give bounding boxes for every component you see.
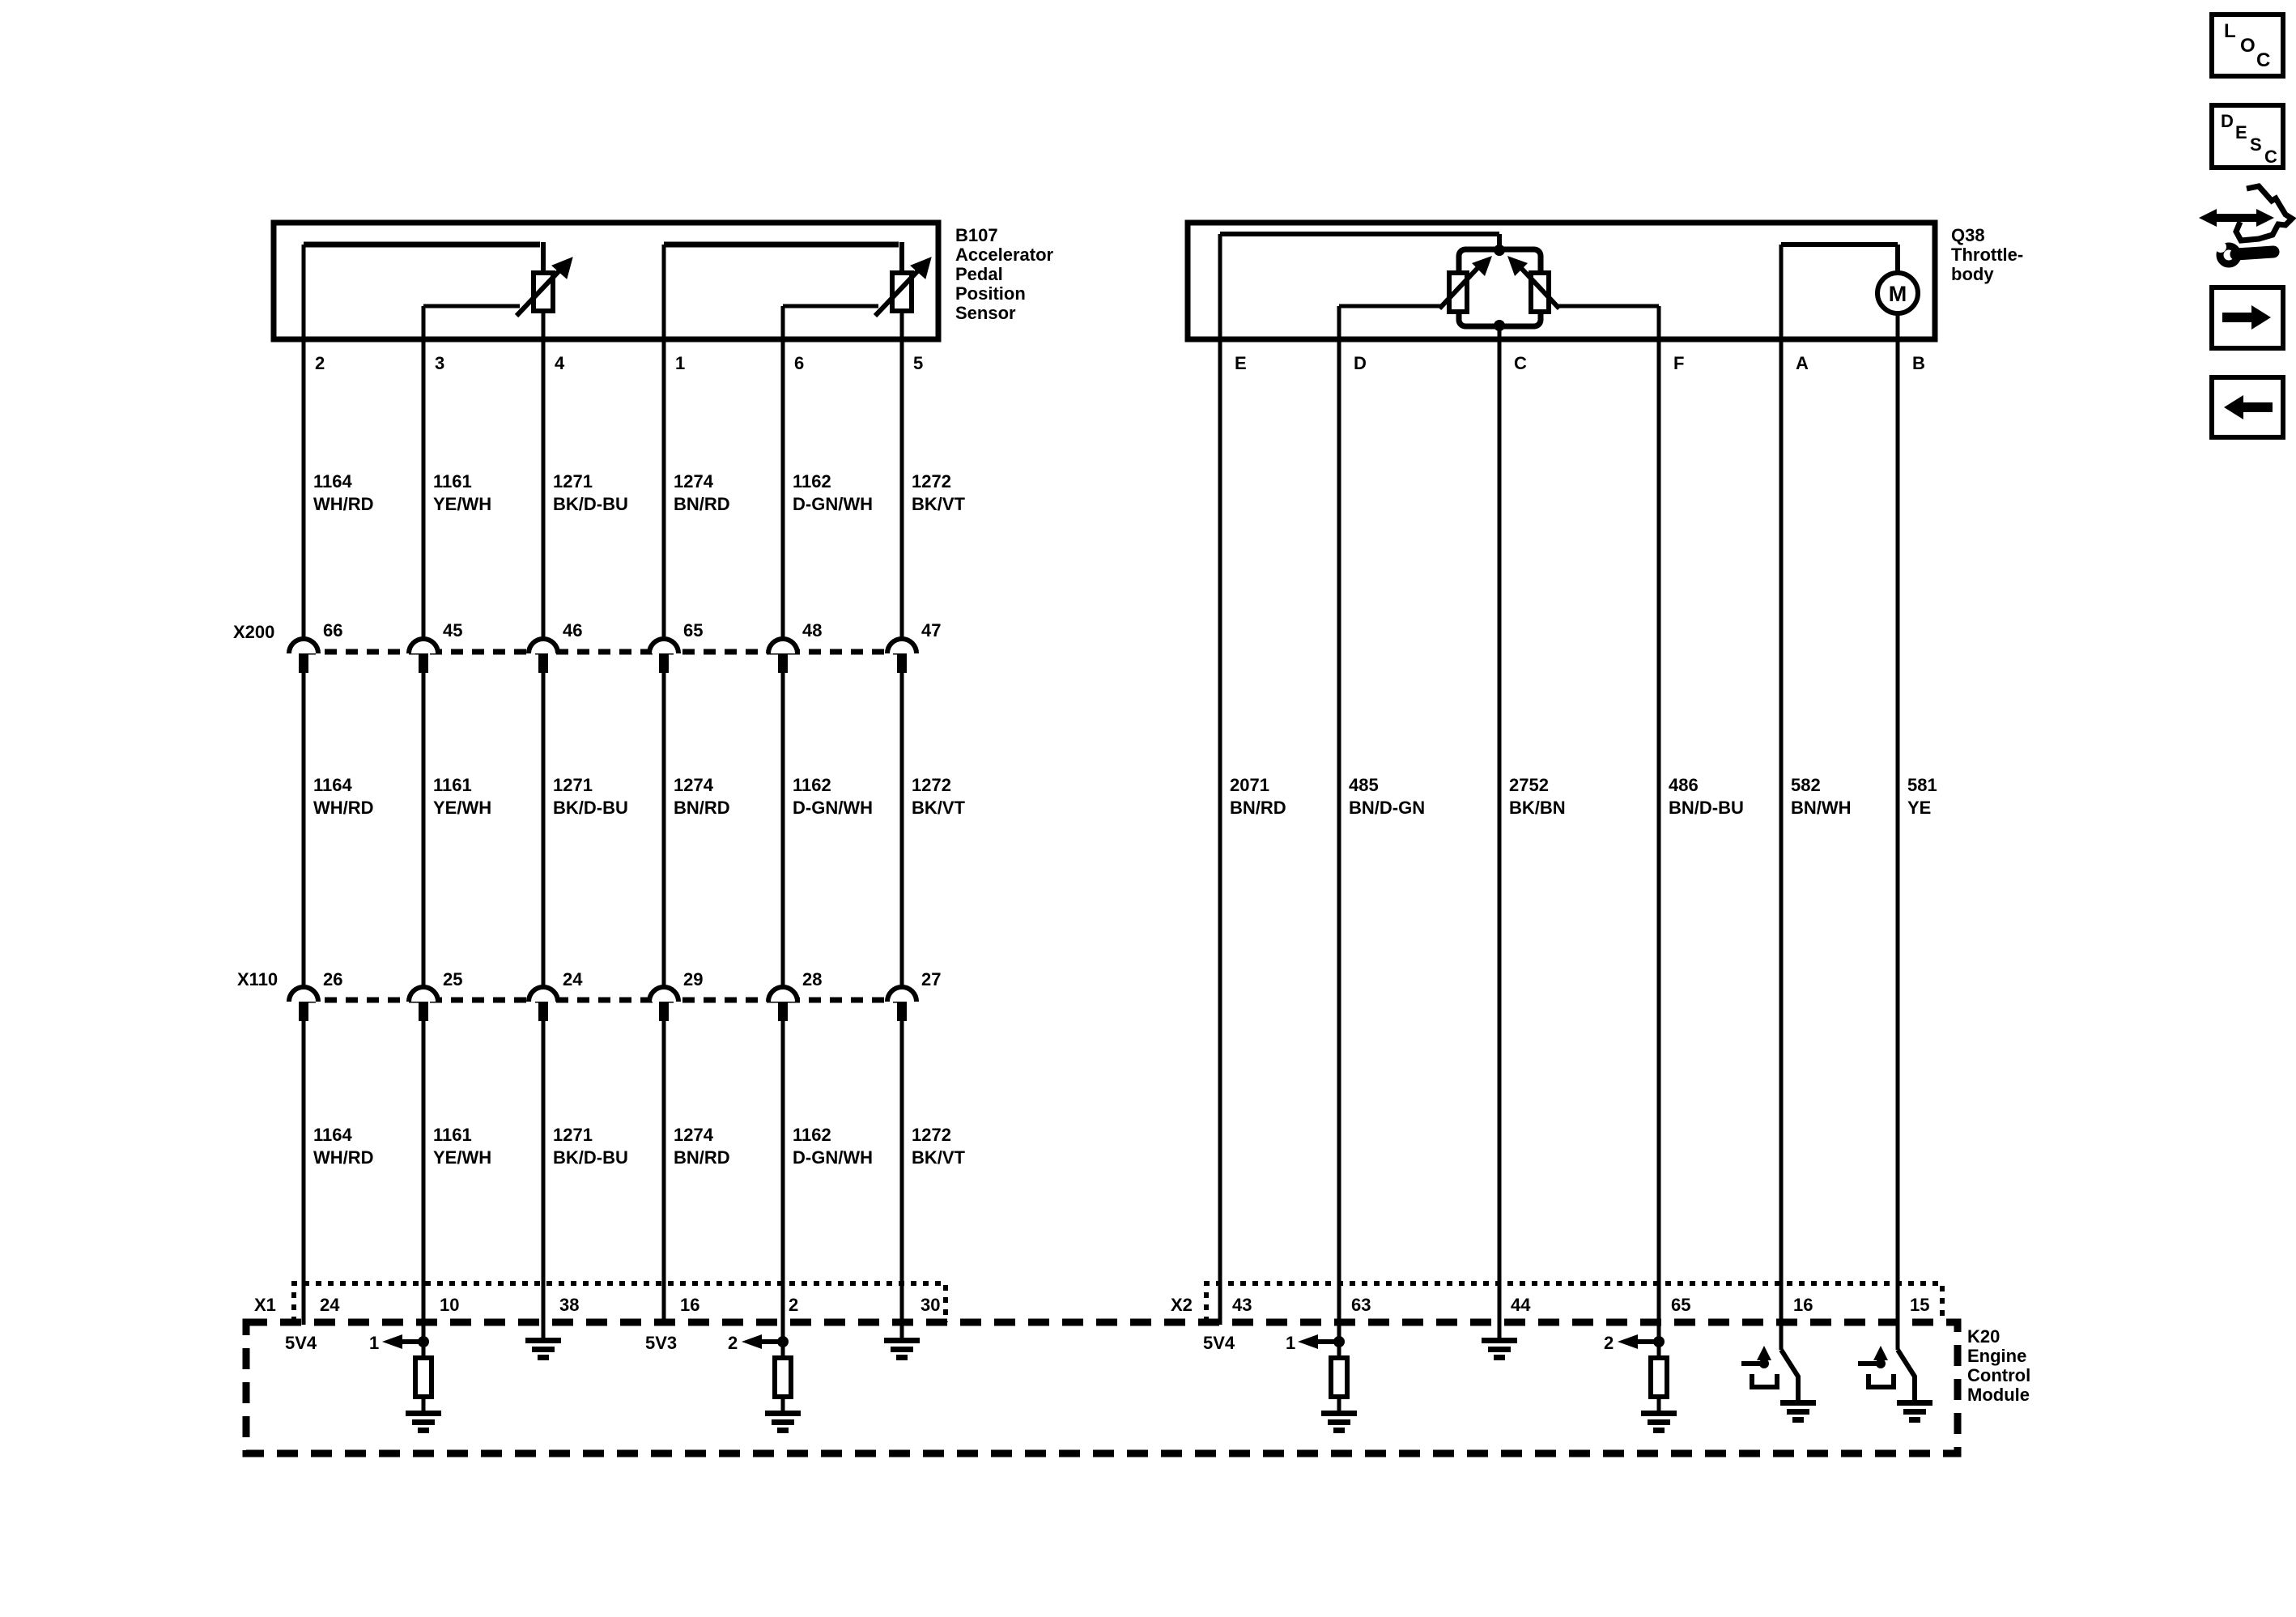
ground-symbol bbox=[1321, 1411, 1357, 1433]
ecm-arrow-ref: 2 bbox=[1604, 1333, 1614, 1354]
wire-label: 1164WH/RD bbox=[313, 470, 374, 516]
x200-cavity: 48 bbox=[802, 620, 822, 641]
driver-symbol bbox=[1741, 1346, 1816, 1423]
x2-cavity: 15 bbox=[1910, 1295, 1929, 1316]
x110-cavity: 26 bbox=[323, 969, 342, 990]
b107-pin: 1 bbox=[675, 353, 685, 374]
b107-id: B107 bbox=[955, 225, 998, 246]
q38-name-line: Throttle- bbox=[1951, 245, 2023, 266]
b107-name-line: Pedal bbox=[955, 264, 1003, 285]
pulldown-resistor bbox=[775, 1358, 791, 1411]
b107-box bbox=[274, 223, 938, 339]
x2-label: X2 bbox=[1171, 1295, 1193, 1316]
ground-symbol bbox=[765, 1411, 801, 1433]
forward-button[interactable] bbox=[2209, 285, 2285, 351]
driver-symbol bbox=[1858, 1346, 1932, 1423]
x110-cavity: 27 bbox=[921, 969, 941, 990]
x1-cavity: 2 bbox=[789, 1295, 798, 1316]
ground-symbol bbox=[406, 1411, 441, 1433]
wire-label: 1272BK/VT bbox=[912, 774, 965, 819]
pulldown-resistor bbox=[415, 1358, 432, 1411]
wire-label: 1161YE/WH bbox=[433, 774, 491, 819]
loc-letter: C bbox=[2256, 49, 2270, 72]
x110-cavity: 29 bbox=[683, 969, 703, 990]
x1-cavity: 24 bbox=[320, 1295, 339, 1316]
x1-label: X1 bbox=[254, 1295, 276, 1316]
q38-box-group bbox=[1188, 223, 1935, 339]
q38-id: Q38 bbox=[1951, 225, 1985, 246]
ecm-arrow-ref: 2 bbox=[728, 1333, 738, 1354]
connector-view-button[interactable] bbox=[2196, 183, 2296, 272]
desc-letter: E bbox=[2235, 122, 2247, 143]
b107-pin: 2 bbox=[315, 353, 325, 374]
x200-cavity: 47 bbox=[921, 620, 941, 641]
x110-cavity: 28 bbox=[802, 969, 822, 990]
x110-cavity: 25 bbox=[443, 969, 462, 990]
wire-label: 1161YE/WH bbox=[433, 470, 491, 516]
b107-name-line: Sensor bbox=[955, 303, 1016, 324]
x110-cavity: 24 bbox=[563, 969, 582, 990]
wire-label: 1272BK/VT bbox=[912, 470, 965, 516]
desc-letter: S bbox=[2250, 134, 2262, 155]
x1-cavity: 30 bbox=[921, 1295, 940, 1316]
x2-connector-outline bbox=[1206, 1283, 1942, 1322]
ecm-5v-ref: 5V3 bbox=[645, 1333, 677, 1354]
wire-label: 1161YE/WH bbox=[433, 1124, 491, 1169]
wire-label: 1164WH/RD bbox=[313, 774, 374, 819]
wire-label: 1162D-GN/WH bbox=[793, 774, 873, 819]
k20-name-line: Control bbox=[1967, 1365, 2030, 1386]
x1-cavity: 16 bbox=[680, 1295, 699, 1316]
desc-letter: C bbox=[2264, 147, 2277, 168]
wire-label: 1162D-GN/WH bbox=[793, 1124, 873, 1169]
k20-name-line: Engine bbox=[1967, 1346, 2026, 1367]
q38-pin: C bbox=[1514, 353, 1527, 374]
b107-name-line: Position bbox=[955, 283, 1026, 304]
k20-ecm-box bbox=[246, 1322, 1958, 1453]
k20-name-line: Module bbox=[1967, 1385, 2030, 1406]
wire-label: 2752BK/BN bbox=[1509, 774, 1566, 819]
pulldown-resistor bbox=[1651, 1358, 1667, 1411]
loc-letter: O bbox=[2240, 35, 2256, 57]
wire-label: 1272BK/VT bbox=[912, 1124, 965, 1169]
k20-name-line: K20 bbox=[1967, 1326, 2000, 1347]
ground-symbol bbox=[1482, 1338, 1517, 1360]
wire-label: 1271BK/D-BU bbox=[553, 470, 628, 516]
x200-terminals bbox=[289, 639, 916, 673]
q38-pin: A bbox=[1796, 353, 1809, 374]
ecm-arrow-ref: 1 bbox=[1286, 1333, 1295, 1354]
ground-symbol bbox=[884, 1338, 920, 1360]
motor-label: M bbox=[1886, 282, 1910, 307]
x200-cavity: 46 bbox=[563, 620, 582, 641]
tps-frame bbox=[1459, 249, 1541, 326]
ground-symbol bbox=[1641, 1411, 1677, 1433]
pulldown-resistor bbox=[1331, 1358, 1347, 1411]
b107-pin: 5 bbox=[913, 353, 923, 374]
x110-label: X110 bbox=[237, 969, 278, 990]
q38-pin: F bbox=[1673, 353, 1684, 374]
loc-button[interactable]: L O C bbox=[2209, 12, 2285, 79]
forward-arrow-icon bbox=[2214, 290, 2281, 346]
q38-pin: B bbox=[1912, 353, 1925, 374]
ecm-internal-right bbox=[1298, 1334, 1932, 1433]
wire-label: 1271BK/D-BU bbox=[553, 774, 628, 819]
b107-pin: 3 bbox=[435, 353, 444, 374]
wire-label: 1162D-GN/WH bbox=[793, 470, 873, 516]
x200-label: X200 bbox=[233, 622, 274, 643]
x2-cavity: 43 bbox=[1232, 1295, 1252, 1316]
q38-pin: D bbox=[1354, 353, 1367, 374]
desc-button[interactable]: D E S C bbox=[2209, 103, 2285, 170]
wire-label: 2071BN/RD bbox=[1230, 774, 1286, 819]
ground-symbol bbox=[525, 1338, 561, 1360]
x1-cavity: 38 bbox=[559, 1295, 579, 1316]
loc-letter: L bbox=[2224, 20, 2236, 43]
wire-label: 582BN/WH bbox=[1791, 774, 1852, 819]
wire-label: 486BN/D-BU bbox=[1669, 774, 1744, 819]
x2-cavity: 63 bbox=[1351, 1295, 1371, 1316]
connector-outlines bbox=[246, 1283, 1958, 1453]
wire-label: 1274BN/RD bbox=[674, 1124, 730, 1169]
q38-box bbox=[1188, 223, 1935, 339]
x2-cavity: 65 bbox=[1671, 1295, 1690, 1316]
ecm-5v-ref: 5V4 bbox=[285, 1333, 317, 1354]
x1-connector-outline bbox=[294, 1283, 946, 1322]
wire-label: 1274BN/RD bbox=[674, 470, 730, 516]
service-arrow-2 bbox=[742, 1334, 789, 1349]
wire-label: 1271BK/D-BU bbox=[553, 1124, 628, 1169]
service-arrow-2 bbox=[1618, 1334, 1665, 1349]
back-button[interactable] bbox=[2209, 375, 2285, 440]
desc-letter: D bbox=[2221, 111, 2234, 132]
x200-cavity: 65 bbox=[683, 620, 703, 641]
x200-cavity: 45 bbox=[443, 620, 462, 641]
b107-name-line: Accelerator bbox=[955, 245, 1053, 266]
q38-pin: E bbox=[1235, 353, 1247, 374]
wire-label: 1274BN/RD bbox=[674, 774, 730, 819]
wiring-diagram-canvas: B107 Accelerator Pedal Position Sensor Q… bbox=[0, 0, 2296, 1617]
x2-cavity: 16 bbox=[1793, 1295, 1813, 1316]
ecm-5v-ref: 5V4 bbox=[1203, 1333, 1235, 1354]
x110-terminals bbox=[289, 987, 916, 1021]
b107-pin: 4 bbox=[555, 353, 564, 374]
connector-wrench-icon bbox=[2196, 183, 2296, 272]
x2-cavity: 44 bbox=[1511, 1295, 1530, 1316]
wire-label: 581YE bbox=[1907, 774, 1937, 819]
service-arrow-1 bbox=[1298, 1334, 1345, 1349]
x1-cavity: 10 bbox=[440, 1295, 459, 1316]
wire-label: 485BN/D-GN bbox=[1349, 774, 1425, 819]
wire-label: 1164WH/RD bbox=[313, 1124, 374, 1169]
ecm-arrow-ref: 1 bbox=[369, 1333, 379, 1354]
b107-box-group bbox=[274, 223, 938, 339]
b107-pin: 6 bbox=[794, 353, 804, 374]
service-arrow-1 bbox=[382, 1334, 429, 1349]
q38-name-line: body bbox=[1951, 264, 1994, 285]
back-arrow-icon bbox=[2214, 380, 2281, 435]
x200-cavity: 66 bbox=[323, 620, 342, 641]
